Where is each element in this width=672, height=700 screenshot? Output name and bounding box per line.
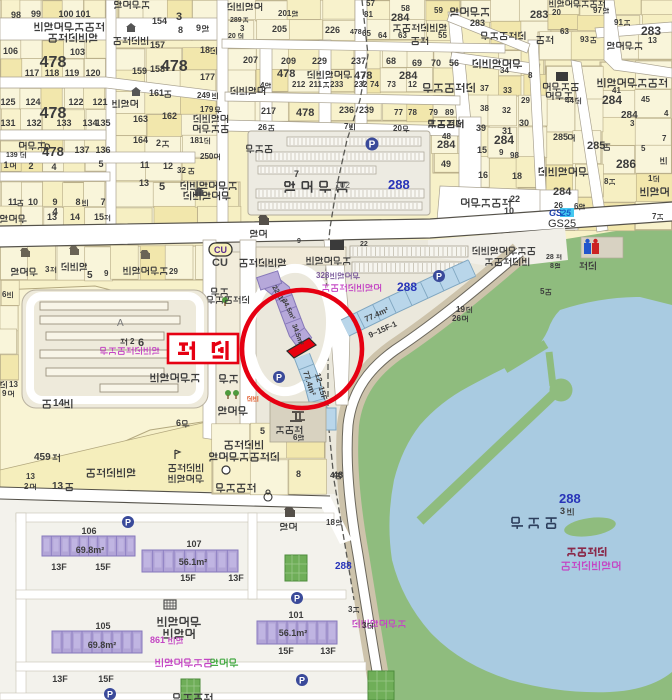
svg-text:13: 13 bbox=[9, 380, 18, 389]
svg-text:12: 12 bbox=[163, 161, 173, 171]
svg-text:284: 284 bbox=[602, 93, 622, 107]
svg-text:1: 1 bbox=[3, 160, 8, 170]
svg-text:GS25: GS25 bbox=[548, 218, 576, 230]
svg-text:8: 8 bbox=[604, 177, 609, 186]
svg-text:5: 5 bbox=[98, 159, 103, 169]
svg-text:3: 3 bbox=[45, 265, 50, 274]
svg-text:55: 55 bbox=[438, 31, 447, 40]
svg-text:4: 4 bbox=[51, 162, 56, 172]
svg-text:102: 102 bbox=[335, 180, 350, 190]
svg-text:121: 121 bbox=[92, 97, 107, 107]
svg-text:20: 20 bbox=[228, 33, 236, 40]
svg-text:285: 285 bbox=[553, 132, 568, 142]
svg-text:283: 283 bbox=[641, 24, 661, 38]
svg-text:49: 49 bbox=[441, 159, 451, 169]
svg-text:209: 209 bbox=[281, 56, 296, 66]
svg-text:22: 22 bbox=[360, 241, 368, 248]
svg-text:A: A bbox=[117, 318, 124, 329]
svg-text:CU: CU bbox=[214, 245, 227, 255]
svg-text:5: 5 bbox=[260, 426, 265, 436]
svg-text:P: P bbox=[369, 140, 376, 151]
svg-text:18: 18 bbox=[200, 45, 210, 55]
svg-text:4: 4 bbox=[664, 109, 669, 118]
svg-text:58: 58 bbox=[401, 4, 410, 13]
svg-text:161: 161 bbox=[149, 88, 164, 98]
svg-text:6: 6 bbox=[293, 433, 298, 442]
svg-text:117: 117 bbox=[25, 68, 40, 78]
svg-text:478: 478 bbox=[350, 29, 362, 36]
svg-text:118: 118 bbox=[45, 68, 60, 78]
svg-text:45: 45 bbox=[641, 95, 650, 104]
svg-text:154: 154 bbox=[152, 16, 167, 26]
svg-text:181: 181 bbox=[190, 136, 204, 145]
svg-text:131: 131 bbox=[0, 118, 15, 128]
svg-text:106: 106 bbox=[3, 46, 18, 56]
svg-text:207: 207 bbox=[243, 55, 258, 65]
svg-text:289: 289 bbox=[230, 17, 242, 24]
svg-text:288: 288 bbox=[559, 491, 581, 506]
svg-text:232: 232 bbox=[354, 80, 368, 89]
svg-text:162: 162 bbox=[162, 111, 177, 121]
svg-text:101: 101 bbox=[75, 9, 90, 19]
svg-text:5: 5 bbox=[641, 144, 646, 153]
svg-text:57: 57 bbox=[366, 0, 375, 8]
svg-text:29: 29 bbox=[169, 267, 178, 276]
svg-text:37: 37 bbox=[480, 84, 489, 93]
svg-text:249: 249 bbox=[197, 91, 211, 100]
svg-text:212: 212 bbox=[292, 80, 306, 89]
svg-text:98: 98 bbox=[11, 10, 21, 20]
svg-text:9: 9 bbox=[297, 238, 301, 245]
svg-text:14: 14 bbox=[70, 212, 80, 222]
svg-text:11: 11 bbox=[8, 197, 18, 207]
svg-text:44: 44 bbox=[565, 96, 574, 105]
svg-text:13F: 13F bbox=[51, 562, 67, 572]
svg-text:139: 139 bbox=[6, 152, 18, 159]
svg-text:69.8m²: 69.8m² bbox=[76, 545, 105, 555]
svg-text:13F: 13F bbox=[228, 573, 244, 583]
svg-text:56.1m²: 56.1m² bbox=[179, 557, 208, 567]
svg-text:237: 237 bbox=[351, 56, 366, 66]
svg-text:91: 91 bbox=[614, 18, 623, 27]
svg-text:97: 97 bbox=[593, 6, 602, 15]
svg-text:2: 2 bbox=[24, 482, 29, 491]
svg-text:98: 98 bbox=[510, 151, 519, 160]
svg-text:5: 5 bbox=[87, 270, 93, 281]
svg-text:239: 239 bbox=[359, 105, 374, 115]
svg-text:177: 177 bbox=[200, 72, 215, 82]
svg-text:211: 211 bbox=[309, 80, 322, 89]
svg-text:59: 59 bbox=[434, 6, 443, 15]
svg-text:7: 7 bbox=[294, 169, 299, 179]
svg-text:13F: 13F bbox=[52, 674, 68, 684]
svg-text:459: 459 bbox=[34, 452, 51, 463]
svg-text:100: 100 bbox=[58, 9, 73, 19]
svg-text:217: 217 bbox=[261, 106, 276, 116]
svg-text:6: 6 bbox=[176, 418, 181, 428]
svg-text:12: 12 bbox=[408, 80, 417, 89]
svg-text:30: 30 bbox=[519, 118, 529, 128]
svg-text:106: 106 bbox=[81, 526, 96, 536]
svg-text:34: 34 bbox=[500, 66, 509, 75]
svg-text:120: 120 bbox=[85, 68, 100, 78]
svg-text:18: 18 bbox=[326, 518, 335, 527]
svg-text:63: 63 bbox=[398, 31, 407, 40]
svg-text:13F: 13F bbox=[320, 646, 336, 656]
svg-text:78: 78 bbox=[408, 108, 417, 117]
svg-text:157: 157 bbox=[150, 40, 165, 50]
svg-text:26: 26 bbox=[258, 123, 267, 132]
svg-text:P: P bbox=[294, 593, 300, 603]
svg-text:32: 32 bbox=[177, 166, 186, 175]
svg-text:7: 7 bbox=[652, 212, 657, 221]
svg-text:285: 285 bbox=[587, 140, 605, 152]
svg-text:6: 6 bbox=[574, 202, 579, 211]
svg-text:8: 8 bbox=[296, 469, 301, 479]
svg-text:288: 288 bbox=[388, 177, 410, 192]
svg-text:2: 2 bbox=[28, 161, 33, 171]
svg-text:29: 29 bbox=[521, 96, 530, 105]
svg-text:328: 328 bbox=[316, 271, 330, 280]
svg-text:229: 229 bbox=[312, 56, 327, 66]
svg-text:8: 8 bbox=[75, 197, 80, 207]
svg-text:74: 74 bbox=[370, 80, 379, 89]
svg-text:32: 32 bbox=[502, 106, 511, 115]
svg-text:286: 286 bbox=[616, 157, 636, 171]
svg-text:478: 478 bbox=[277, 68, 295, 80]
svg-text:48: 48 bbox=[442, 132, 451, 141]
svg-text:158: 158 bbox=[150, 64, 165, 74]
svg-text:18: 18 bbox=[512, 171, 522, 181]
svg-text:15F: 15F bbox=[180, 573, 196, 583]
svg-text:478: 478 bbox=[296, 107, 314, 119]
svg-text:11: 11 bbox=[140, 160, 150, 170]
svg-text:56: 56 bbox=[449, 58, 459, 68]
svg-text:81: 81 bbox=[364, 10, 373, 19]
svg-text:16: 16 bbox=[478, 170, 488, 180]
svg-text:15F: 15F bbox=[278, 646, 294, 656]
svg-text:13: 13 bbox=[26, 472, 35, 481]
svg-text:9: 9 bbox=[2, 389, 7, 398]
svg-text:77: 77 bbox=[394, 108, 403, 117]
svg-text:15F: 15F bbox=[95, 562, 111, 572]
svg-text:13: 13 bbox=[52, 481, 64, 492]
svg-text:20: 20 bbox=[393, 124, 402, 133]
svg-text:P: P bbox=[299, 675, 305, 685]
svg-text:137: 137 bbox=[74, 145, 89, 155]
svg-text:70: 70 bbox=[431, 58, 441, 68]
svg-text:133: 133 bbox=[56, 118, 71, 128]
svg-text:284: 284 bbox=[391, 12, 410, 24]
svg-text:478: 478 bbox=[42, 144, 64, 159]
svg-text:205: 205 bbox=[272, 24, 287, 34]
svg-text:159: 159 bbox=[132, 66, 147, 76]
svg-text:283: 283 bbox=[530, 9, 548, 21]
svg-text:5: 5 bbox=[540, 287, 545, 296]
svg-text:10: 10 bbox=[28, 197, 38, 207]
svg-text:132: 132 bbox=[26, 118, 41, 128]
svg-text:P: P bbox=[436, 271, 442, 281]
svg-text:250: 250 bbox=[200, 152, 214, 161]
svg-text:19: 19 bbox=[456, 305, 465, 314]
svg-text:14: 14 bbox=[53, 398, 65, 409]
svg-text:2: 2 bbox=[130, 337, 135, 346]
svg-text:28: 28 bbox=[546, 254, 554, 261]
svg-text:73: 73 bbox=[387, 80, 396, 89]
svg-text:99: 99 bbox=[31, 9, 41, 19]
svg-text:89: 89 bbox=[445, 108, 454, 117]
svg-text:38: 38 bbox=[480, 104, 489, 113]
svg-text:13: 13 bbox=[47, 212, 57, 222]
svg-text:236: 236 bbox=[339, 105, 354, 115]
svg-text:861: 861 bbox=[150, 635, 165, 645]
svg-text:4: 4 bbox=[260, 81, 265, 90]
svg-text:103: 103 bbox=[70, 47, 85, 57]
svg-text:26: 26 bbox=[554, 201, 563, 210]
svg-text:69: 69 bbox=[412, 58, 422, 68]
svg-text:122: 122 bbox=[68, 97, 83, 107]
svg-text:4: 4 bbox=[330, 471, 335, 480]
svg-text:39: 39 bbox=[476, 123, 486, 133]
svg-text:3: 3 bbox=[348, 605, 353, 614]
svg-text:9: 9 bbox=[104, 269, 109, 278]
svg-text:6: 6 bbox=[2, 290, 7, 299]
svg-text:3: 3 bbox=[362, 621, 367, 630]
svg-text:31: 31 bbox=[502, 126, 512, 136]
svg-text:7: 7 bbox=[100, 197, 105, 207]
svg-text:15: 15 bbox=[477, 145, 487, 155]
svg-text:101: 101 bbox=[288, 610, 303, 620]
svg-text:164: 164 bbox=[133, 135, 148, 145]
svg-text:41: 41 bbox=[612, 86, 621, 95]
svg-text:3: 3 bbox=[630, 119, 635, 128]
svg-text:65: 65 bbox=[362, 29, 371, 38]
svg-text:105: 105 bbox=[95, 621, 110, 631]
svg-text:288: 288 bbox=[397, 280, 417, 294]
svg-text:15: 15 bbox=[94, 212, 104, 222]
svg-text:69.8m²: 69.8m² bbox=[88, 640, 117, 650]
svg-text:P: P bbox=[125, 517, 131, 527]
svg-text:20: 20 bbox=[552, 8, 561, 17]
svg-text:79: 79 bbox=[429, 108, 438, 117]
svg-text:1: 1 bbox=[648, 174, 653, 183]
svg-text:163: 163 bbox=[133, 114, 148, 124]
svg-text:68: 68 bbox=[386, 56, 396, 66]
svg-text:P: P bbox=[107, 689, 113, 699]
svg-text:7: 7 bbox=[662, 134, 667, 143]
svg-text:136: 136 bbox=[95, 145, 110, 155]
svg-text:135: 135 bbox=[95, 118, 110, 128]
svg-text:288: 288 bbox=[335, 561, 352, 572]
svg-text:124: 124 bbox=[25, 97, 40, 107]
svg-text:125: 125 bbox=[0, 97, 15, 107]
svg-text:63: 63 bbox=[560, 27, 569, 36]
svg-text:8: 8 bbox=[178, 25, 183, 35]
svg-text:284: 284 bbox=[553, 186, 572, 198]
svg-text:22: 22 bbox=[510, 194, 520, 204]
svg-text:P: P bbox=[276, 372, 282, 382]
svg-text:93: 93 bbox=[580, 35, 589, 44]
svg-text:9: 9 bbox=[196, 23, 201, 33]
svg-text:7: 7 bbox=[344, 122, 349, 131]
svg-text:3: 3 bbox=[240, 24, 245, 33]
svg-text:8: 8 bbox=[528, 71, 533, 80]
svg-text:15F: 15F bbox=[98, 674, 114, 684]
svg-text:10: 10 bbox=[504, 206, 514, 216]
svg-text:201: 201 bbox=[278, 9, 292, 18]
svg-text:9: 9 bbox=[52, 197, 57, 207]
svg-text:179: 179 bbox=[200, 105, 214, 114]
svg-text:119: 119 bbox=[65, 68, 80, 78]
svg-text:3: 3 bbox=[560, 506, 565, 516]
svg-text:64: 64 bbox=[378, 31, 387, 40]
svg-text:13: 13 bbox=[139, 178, 149, 188]
svg-text:8: 8 bbox=[550, 263, 554, 270]
svg-text:233: 233 bbox=[330, 80, 344, 89]
svg-text:3: 3 bbox=[176, 11, 182, 23]
svg-text:5: 5 bbox=[159, 181, 165, 193]
svg-text:226: 226 bbox=[325, 25, 340, 35]
svg-text:107: 107 bbox=[186, 539, 201, 549]
svg-text:33: 33 bbox=[503, 86, 512, 95]
svg-text:26: 26 bbox=[452, 314, 461, 323]
svg-text:CU: CU bbox=[212, 257, 228, 269]
svg-text:56.1m²: 56.1m² bbox=[279, 628, 308, 638]
svg-text:2: 2 bbox=[156, 138, 161, 148]
svg-text:9: 9 bbox=[499, 148, 504, 157]
svg-text:283: 283 bbox=[470, 18, 485, 28]
